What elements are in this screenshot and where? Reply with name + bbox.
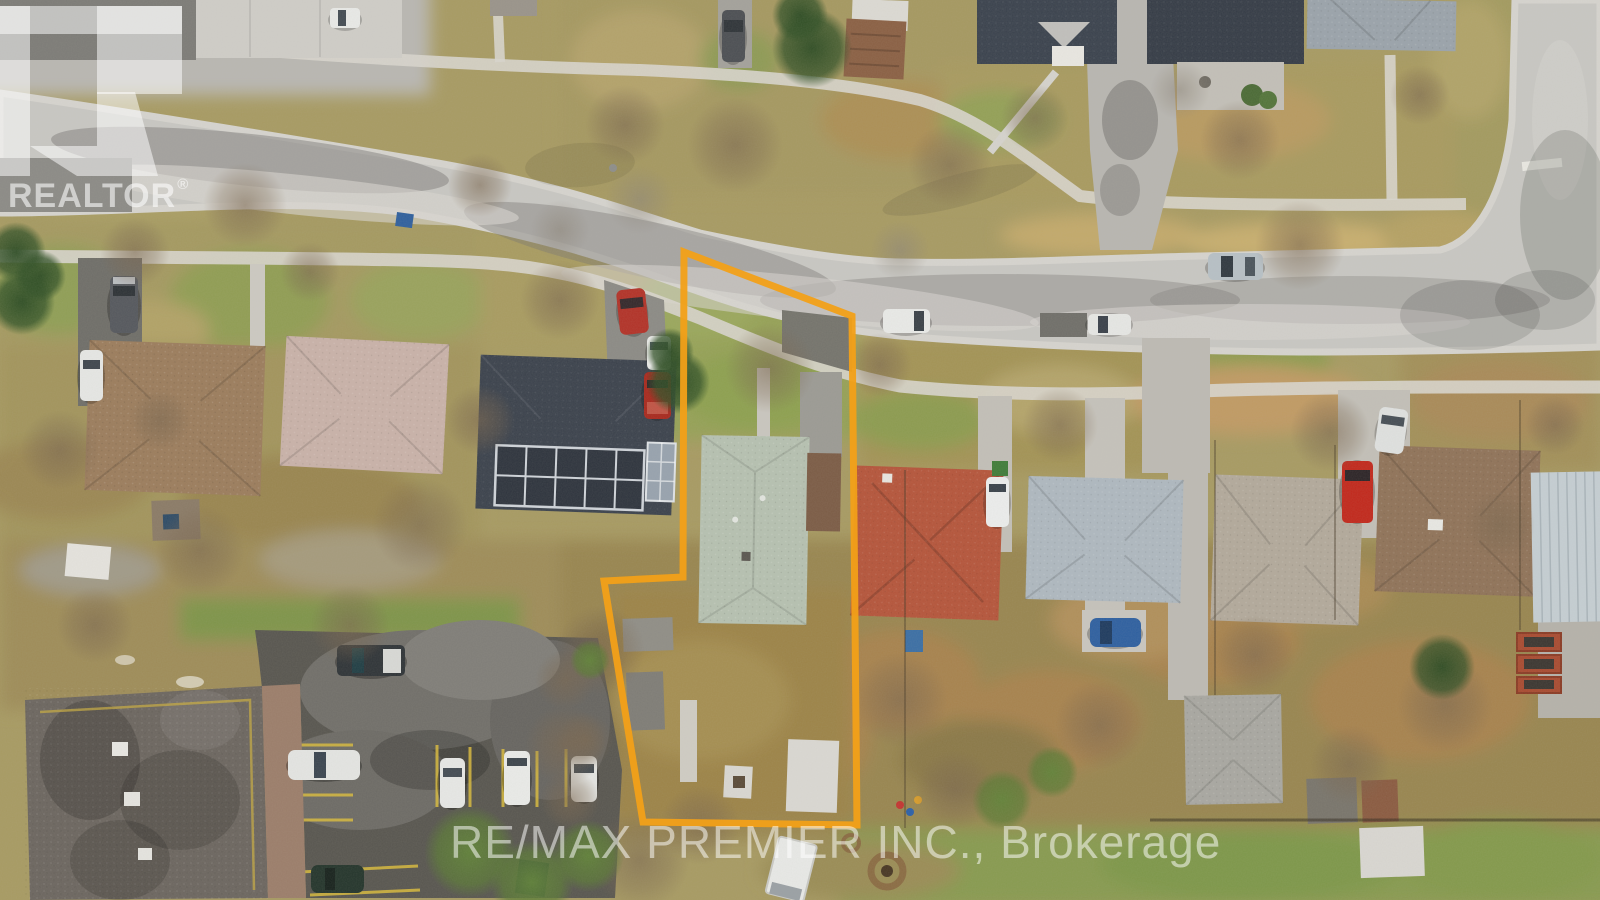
aerial-photo: REALTOR® RE/MAX PREMIER INC., Brokerage bbox=[0, 0, 1600, 900]
aerial-scene bbox=[0, 0, 1600, 900]
brokerage-watermark: RE/MAX PREMIER INC., Brokerage bbox=[450, 815, 1221, 869]
realtor-logo-label: REALTOR® bbox=[8, 176, 189, 216]
realtor-block-r-icon bbox=[0, 6, 184, 178]
registered-trademark: ® bbox=[177, 176, 189, 193]
photo-grain bbox=[0, 0, 1600, 900]
realtor-logo-text: REALTOR bbox=[8, 177, 176, 215]
realtor-logo bbox=[0, 6, 184, 183]
